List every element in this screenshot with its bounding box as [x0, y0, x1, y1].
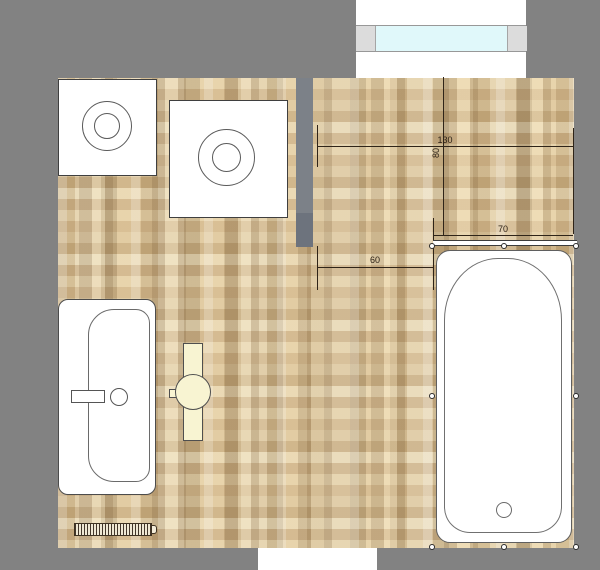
selection-handle-top-mid[interactable]	[501, 243, 507, 249]
selection-handle-mid-left[interactable]	[429, 393, 435, 399]
bathtub-drain-icon	[496, 502, 512, 518]
faucet-knob-icon	[110, 388, 128, 406]
selection-handle-bottom-mid[interactable]	[501, 544, 507, 550]
appliance-left[interactable]	[58, 79, 157, 176]
appliance-right-drum-inner-icon	[212, 143, 241, 172]
dim-130-label: 130	[317, 135, 573, 145]
sink[interactable]	[58, 299, 156, 495]
selection-handle-mid-right[interactable]	[573, 393, 579, 399]
selection-handle-bottom-left[interactable]	[429, 544, 435, 550]
dim-80-label: 80	[431, 148, 441, 158]
selection-handle-top-right[interactable]	[573, 243, 579, 249]
window-band	[356, 25, 526, 52]
bathtub-basin	[444, 258, 562, 533]
appliance-right[interactable]	[169, 100, 288, 218]
wall-stub	[296, 78, 313, 213]
dim-60-ext-right	[433, 218, 434, 290]
dim-70-label: 70	[433, 224, 573, 234]
window-frame-right	[507, 26, 527, 51]
door-opening[interactable]	[258, 548, 377, 570]
floorplan-canvas: 130 80 70 60	[0, 0, 600, 570]
dim-60-ext-left	[317, 246, 318, 290]
selection-handle-top-left[interactable]	[429, 243, 435, 249]
faucet-body	[71, 390, 105, 403]
dim-60-line	[317, 267, 433, 268]
dim-130-line	[317, 146, 573, 147]
window-frame-left	[356, 26, 376, 51]
bathtub[interactable]	[436, 250, 572, 543]
dim-70-line	[433, 235, 573, 236]
window[interactable]	[356, 0, 526, 78]
wall-stub-end	[296, 213, 313, 247]
dim-right-ext	[573, 128, 574, 234]
selection-handle-bottom-right[interactable]	[573, 544, 579, 550]
dim-60-label: 60	[317, 255, 433, 265]
dim-80-line	[443, 77, 444, 235]
appliance-left-drum-inner-icon	[94, 113, 120, 139]
window-glass	[376, 26, 507, 51]
toilet-bowl[interactable]	[175, 374, 211, 410]
dim-130-ext-left	[317, 125, 318, 167]
radiator[interactable]	[74, 523, 152, 536]
